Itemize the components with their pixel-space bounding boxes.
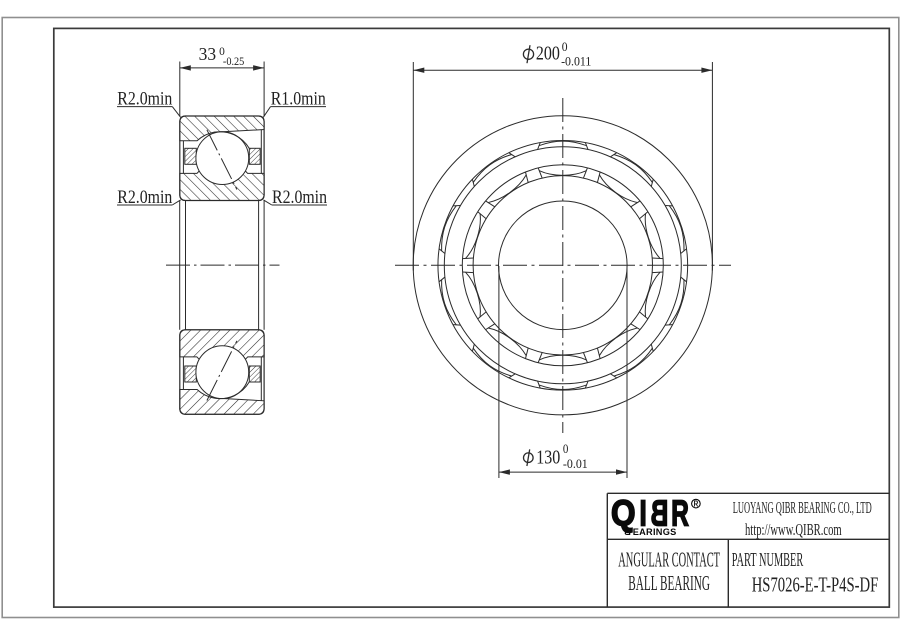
svg-text:BALL BEARING: BALL BEARING	[628, 571, 710, 595]
svg-text:LUOYANG QIBR BEARING CO., LTD: LUOYANG QIBR BEARING CO., LTD	[733, 498, 872, 517]
svg-text:-0.25: -0.25	[223, 54, 244, 68]
svg-text:0: 0	[562, 39, 568, 54]
svg-text:33: 33	[199, 44, 217, 64]
svg-text:-0.011: -0.011	[561, 53, 591, 68]
svg-text:200: 200	[536, 43, 560, 65]
svg-text:0: 0	[563, 442, 569, 456]
svg-text:130: 130	[536, 447, 560, 469]
svg-text:ANGULAR CONTACT: ANGULAR CONTACT	[618, 547, 720, 571]
svg-text:HS7026-E-T-P4S-DF: HS7026-E-T-P4S-DF	[752, 573, 879, 597]
svg-text:-0.01: -0.01	[563, 456, 588, 471]
svg-text:http://www.QIBR.com: http://www.QIBR.com	[745, 520, 842, 539]
svg-text:EARINGS: EARINGS	[633, 527, 677, 537]
svg-text:B: B	[624, 527, 631, 537]
svg-text:R: R	[694, 500, 699, 509]
svg-text:PART NUMBER: PART NUMBER	[732, 549, 804, 571]
